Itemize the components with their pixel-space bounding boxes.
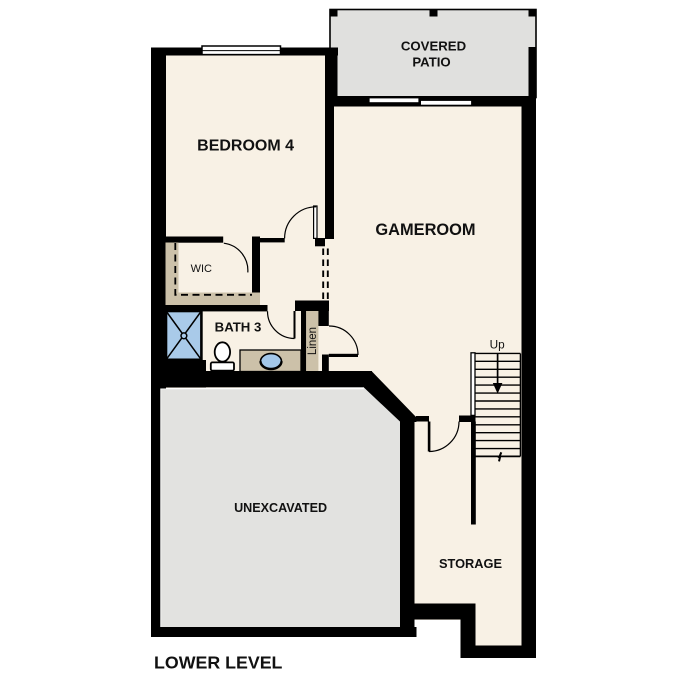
svg-text:STORAGE: STORAGE	[439, 556, 503, 571]
svg-text:LOWER LEVEL: LOWER LEVEL	[154, 653, 283, 673]
svg-text:PATIO: PATIO	[412, 54, 450, 69]
svg-text:UNEXCAVATED: UNEXCAVATED	[234, 501, 327, 515]
svg-text:WIC: WIC	[191, 263, 212, 275]
svg-text:BEDROOM 4: BEDROOM 4	[197, 138, 294, 155]
svg-text:Linen: Linen	[307, 327, 319, 355]
svg-text:GAMEROOM: GAMEROOM	[375, 221, 475, 239]
svg-text:COVERED: COVERED	[401, 39, 466, 54]
svg-text:BATH 3: BATH 3	[215, 319, 262, 334]
svg-text:Up: Up	[490, 338, 506, 352]
